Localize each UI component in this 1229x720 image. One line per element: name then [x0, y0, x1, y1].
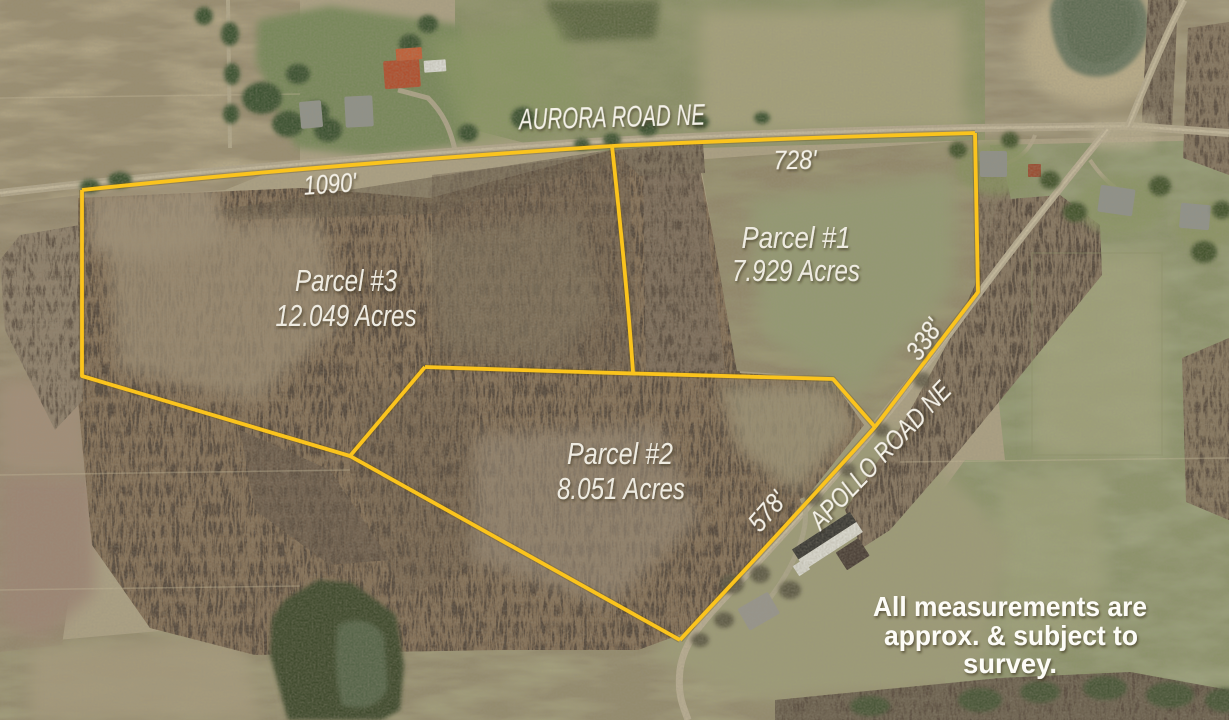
svg-text:Parcel #2: Parcel #2 [567, 436, 673, 471]
svg-text:approx. & subject to: approx. & subject to [884, 620, 1138, 651]
svg-text:All measurements are: All measurements are [873, 591, 1147, 622]
svg-text:12.049 Acres: 12.049 Acres [276, 298, 417, 333]
svg-text:7.929 Acres: 7.929 Acres [732, 253, 860, 288]
svg-text:1090': 1090' [302, 167, 358, 201]
svg-text:728': 728' [773, 145, 817, 176]
svg-text:survey.: survey. [963, 648, 1057, 679]
svg-text:AURORA ROAD NE: AURORA ROAD NE [517, 99, 706, 137]
svg-text:Parcel #3: Parcel #3 [295, 263, 397, 298]
svg-text:8.051 Acres: 8.051 Acres [557, 471, 685, 506]
svg-text:Parcel #1: Parcel #1 [742, 220, 851, 255]
